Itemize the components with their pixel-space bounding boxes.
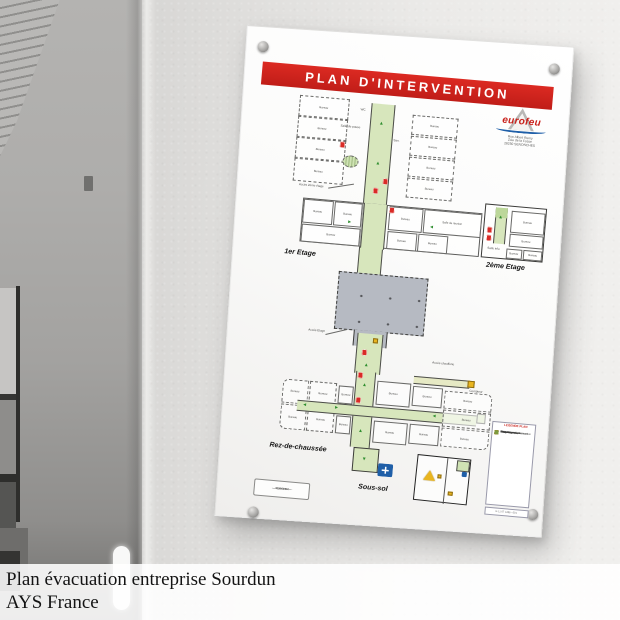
room-label: Bureau [528, 254, 537, 258]
caption-title: Plan évacuation entreprise Sourdun [6, 569, 276, 591]
room-label: Bureau [523, 221, 532, 225]
floor2-label: 2ème Etage [486, 262, 525, 272]
access-label: Accès 2ème étage [299, 183, 324, 188]
legend-row: Cheminement d'évacuation [492, 429, 493, 436]
legend-row: Danger spécifique [492, 429, 493, 436]
door-sill [0, 474, 19, 482]
room-label: Bureau [510, 252, 519, 256]
evac-arrow-icon: ▲ [498, 215, 503, 220]
corridor-mid [354, 333, 383, 375]
floor1-label: 1er Etage [284, 248, 316, 258]
room-label: Bureau [397, 240, 406, 244]
room-label: Bureau [320, 106, 329, 110]
hallway-fixture [84, 176, 93, 191]
hazard-marker-icon [437, 474, 441, 478]
evac-arrow-icon: ◄ [302, 402, 307, 407]
evac-arrow-icon: ◄ [429, 225, 434, 230]
room-label: Bureau [427, 167, 436, 171]
legend: LEGENDE PLAN Cheminement d'évacuationSor… [485, 421, 536, 509]
logo-address: Rue Albert RemyZAe de la Fosse28250 SENO… [501, 135, 538, 149]
legend-swatch-icon [494, 430, 498, 434]
exit-icon [456, 460, 470, 472]
room-label: San. [391, 139, 401, 143]
room-label: Bureau [419, 433, 428, 437]
room-label: Bureau [401, 218, 410, 222]
room-label: Bureau [522, 240, 531, 244]
cartouche: — EUROFEU —— Services —— 000 000 000 — [253, 478, 310, 500]
ria-icon [486, 235, 492, 241]
plan-floor2: Bureau Bureau Salle info Bureau Bureau ▲ [481, 203, 547, 262]
room-label: Bureau [385, 431, 394, 435]
hall-block [334, 271, 429, 337]
extinguisher-icon [383, 178, 389, 184]
evac-arrow-icon: ► [334, 405, 339, 410]
legend-row: R.I.A. [492, 429, 493, 436]
extinguisher-icon [340, 142, 346, 148]
legend-title: LEGENDE PLAN [504, 424, 526, 429]
meter-icon [467, 381, 475, 389]
room-label: Bureau [318, 127, 327, 131]
sousol-label: Sous-sol [358, 483, 388, 493]
plan-top-wing: Bureau Bureau Bureau Bureau Bureau Burea… [292, 91, 462, 203]
plan-floor1: Bureau Bureau Bureau Salle de réunion Bu… [299, 198, 482, 258]
legend-footer: G 11 07 1286 - 001 [484, 507, 529, 519]
room-label: Bureau [428, 242, 437, 246]
caption-subtitle: AYS France [6, 592, 99, 614]
hazard-marker-icon [373, 338, 378, 343]
room-label: Bureau [460, 437, 469, 441]
corridor-floor1 [360, 203, 388, 250]
room-label: Bureau [341, 393, 350, 397]
evac-arrow-icon: ▲ [364, 363, 369, 368]
assembly-mini-icon [462, 472, 467, 477]
extinguisher-icon [362, 349, 368, 355]
board-content: PLAN D'INTERVENTION eurofeu Rue Albert R… [205, 26, 575, 545]
hazard-marker-icon [448, 491, 453, 496]
cartouche-line: — 000 000 000 — [271, 486, 292, 492]
room-label: Bureau [463, 400, 472, 404]
room-label: Bureau [288, 415, 297, 419]
room-label: Bureau [425, 188, 434, 192]
evac-arrow-icon: ▲ [358, 428, 363, 433]
room-label: Bureau [316, 148, 325, 152]
legend-row: Extincteur [492, 429, 493, 436]
room-label: Bureau [313, 210, 322, 214]
room-label: Bureau [338, 423, 347, 427]
extinguisher-icon [389, 207, 395, 213]
access-label: Accès Etage [308, 328, 325, 333]
warning-triangle-icon [423, 470, 436, 481]
room-label: Salle info [487, 247, 500, 251]
legend-row: Coupure gaz [492, 429, 493, 436]
room-label: Bureau [428, 146, 437, 150]
door-frame [16, 286, 20, 522]
room-label: Bureau [314, 170, 323, 174]
room-label: Bureau [343, 213, 352, 217]
legend-row: Alarme incendie [492, 429, 493, 436]
room-label: WC [359, 108, 367, 112]
legend-row: Local technique [492, 429, 493, 436]
extinguisher-icon [487, 227, 493, 233]
door-pane-upper [0, 288, 16, 396]
room-label: Bureau [316, 418, 325, 422]
assembly-point-icon [377, 463, 393, 477]
room-label: Bureau [462, 418, 471, 422]
evac-arrow-icon: ▼ [361, 457, 366, 462]
evac-arrow-icon: ◄ [431, 414, 436, 419]
room-label: Bureau [291, 390, 300, 394]
room-label: Bureau [430, 125, 439, 129]
room-label: Salle de réunion [442, 221, 462, 225]
door-pane-lower [0, 400, 16, 476]
extinguisher-icon [358, 372, 364, 378]
photo-scene: PLAN D'INTERVENTION eurofeu Rue Albert R… [0, 0, 620, 620]
intervention-plan-board: PLAN D'INTERVENTION eurofeu Rue Albert R… [214, 25, 574, 538]
evac-arrow-icon: ▲ [362, 382, 367, 387]
stairs-icon [342, 155, 359, 168]
room-label: Bureau [423, 395, 432, 399]
legend-row: Point de rassemblement [492, 429, 493, 436]
caption-strip: Plan évacuation entreprise Sourdun AYS F… [0, 564, 620, 620]
eurofeu-logo: eurofeu Rue Albert RemyZAe de la Fosse28… [486, 105, 556, 157]
room-label: Bureau [326, 233, 335, 237]
plan-sousol [413, 454, 472, 505]
wall-corner [126, 0, 156, 620]
legend-row: Vous êtes ici [492, 429, 493, 436]
legend-label: Vous êtes ici [500, 430, 514, 434]
room-label: Bureau [318, 392, 327, 396]
extinguisher-icon [355, 397, 361, 403]
room-label: Bureau [389, 392, 398, 396]
legend-items: Cheminement d'évacuationSortie de secour… [486, 429, 536, 508]
access-label: Accès chaufferie [428, 361, 458, 367]
evac-arrow-icon: ► [347, 220, 352, 225]
legend-row: Sortie de secours [492, 429, 493, 436]
